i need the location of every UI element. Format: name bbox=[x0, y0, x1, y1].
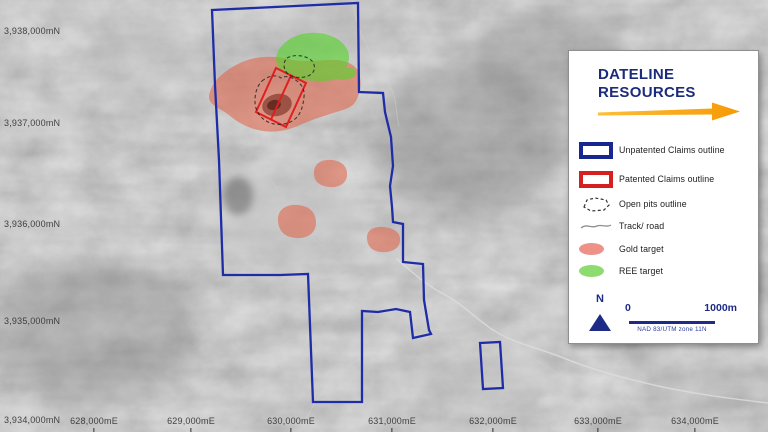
northing-label: 3,937,000mN bbox=[4, 118, 60, 128]
northing-label: 3,934,000mN bbox=[4, 415, 60, 425]
north-arrow-icon bbox=[589, 314, 611, 331]
patented-swatch-icon bbox=[579, 169, 617, 189]
track-road-swatch-icon bbox=[579, 216, 617, 236]
gold-target-c bbox=[367, 227, 400, 252]
legend-item-label: Gold target bbox=[619, 239, 664, 259]
map-figure: 3,938,000mN 3,937,000mN 3,936,000mN 3,93… bbox=[0, 0, 768, 432]
brand-name-line1: DATELINE bbox=[598, 66, 696, 84]
legend-panel: DATELINE RESOURCES Unpatented Claims out… bbox=[568, 50, 759, 344]
scale-start-label: 0 bbox=[625, 302, 631, 314]
unpatented-swatch-icon bbox=[579, 140, 617, 160]
north-label: N bbox=[589, 293, 611, 305]
northing-label: 3,935,000mN bbox=[4, 316, 60, 326]
legend-item-label: Open pits outline bbox=[619, 194, 687, 214]
northing-label: 3,938,000mN bbox=[4, 26, 60, 36]
gold-target-b bbox=[278, 205, 316, 238]
open-pit-swatch-icon bbox=[579, 194, 617, 214]
legend-item-patented: Patented Claims outline bbox=[569, 169, 758, 189]
scale-bar bbox=[629, 321, 715, 324]
brand-arrow-icon bbox=[594, 100, 742, 122]
easting-label: 631,000mE bbox=[368, 416, 416, 426]
legend-item-track-road: Track/ road bbox=[569, 216, 758, 236]
easting-label: 634,000mE bbox=[671, 416, 719, 426]
legend-item-open-pits: Open pits outline bbox=[569, 194, 758, 214]
scale-end-label: 1000m bbox=[695, 302, 737, 314]
legend-item-ree-target: REE target bbox=[569, 261, 758, 281]
legend-item-unpatented: Unpatented Claims outline bbox=[569, 140, 758, 160]
legend-item-label: REE target bbox=[619, 261, 663, 281]
ree-target-swatch-icon bbox=[579, 261, 617, 281]
easting-label: 632,000mE bbox=[469, 416, 517, 426]
gold-target-a bbox=[314, 160, 347, 187]
legend-item-gold-target: Gold target bbox=[569, 239, 758, 259]
easting-label: 629,000mE bbox=[167, 416, 215, 426]
northing-label: 3,936,000mN bbox=[4, 219, 60, 229]
datum-label: NAD 83/UTM zone 11N bbox=[612, 326, 732, 333]
easting-label: 633,000mE bbox=[574, 416, 622, 426]
easting-label: 630,000mE bbox=[267, 416, 315, 426]
easting-label: 628,000mE bbox=[70, 416, 118, 426]
brand-name: DATELINE RESOURCES bbox=[598, 66, 696, 102]
legend-item-label: Track/ road bbox=[619, 216, 664, 236]
gold-target-swatch-icon bbox=[579, 239, 617, 259]
legend-item-label: Patented Claims outline bbox=[619, 169, 714, 189]
legend-item-label: Unpatented Claims outline bbox=[619, 140, 725, 160]
